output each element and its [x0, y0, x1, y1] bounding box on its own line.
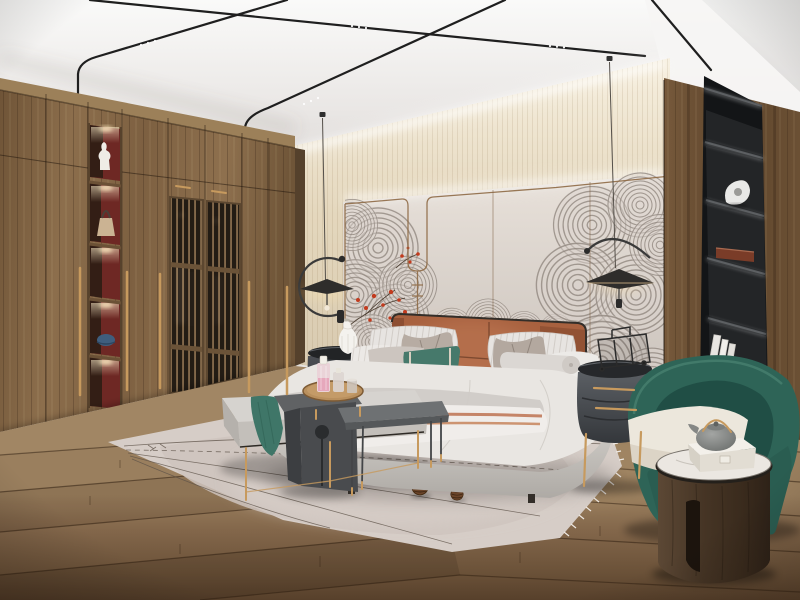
- bedroom-photo: Modern Chinese style bedroom interior 3D…: [0, 0, 800, 600]
- bedroom-render: Modern Chinese style bedroom interior 3D…: [0, 0, 800, 600]
- vignette: [0, 0, 800, 600]
